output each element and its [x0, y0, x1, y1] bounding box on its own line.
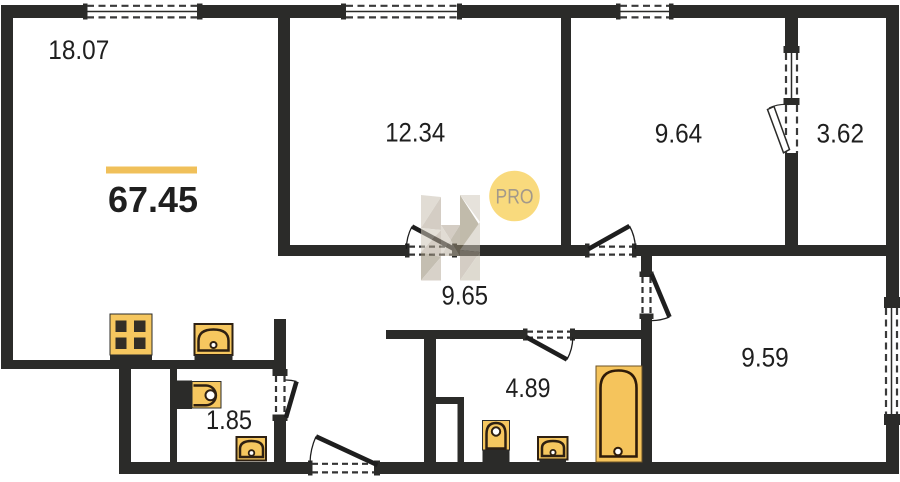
- svg-text:3.62: 3.62: [817, 119, 865, 149]
- svg-text:4.89: 4.89: [506, 373, 551, 403]
- svg-text:18.07: 18.07: [48, 35, 109, 65]
- svg-text:9.59: 9.59: [741, 343, 789, 373]
- svg-text:12.34: 12.34: [385, 118, 445, 148]
- svg-text:67.45: 67.45: [108, 179, 198, 220]
- svg-text:9.65: 9.65: [442, 281, 489, 311]
- svg-text:9.64: 9.64: [655, 119, 703, 149]
- svg-text:PRO: PRO: [496, 186, 534, 209]
- svg-text:1.85: 1.85: [206, 405, 252, 435]
